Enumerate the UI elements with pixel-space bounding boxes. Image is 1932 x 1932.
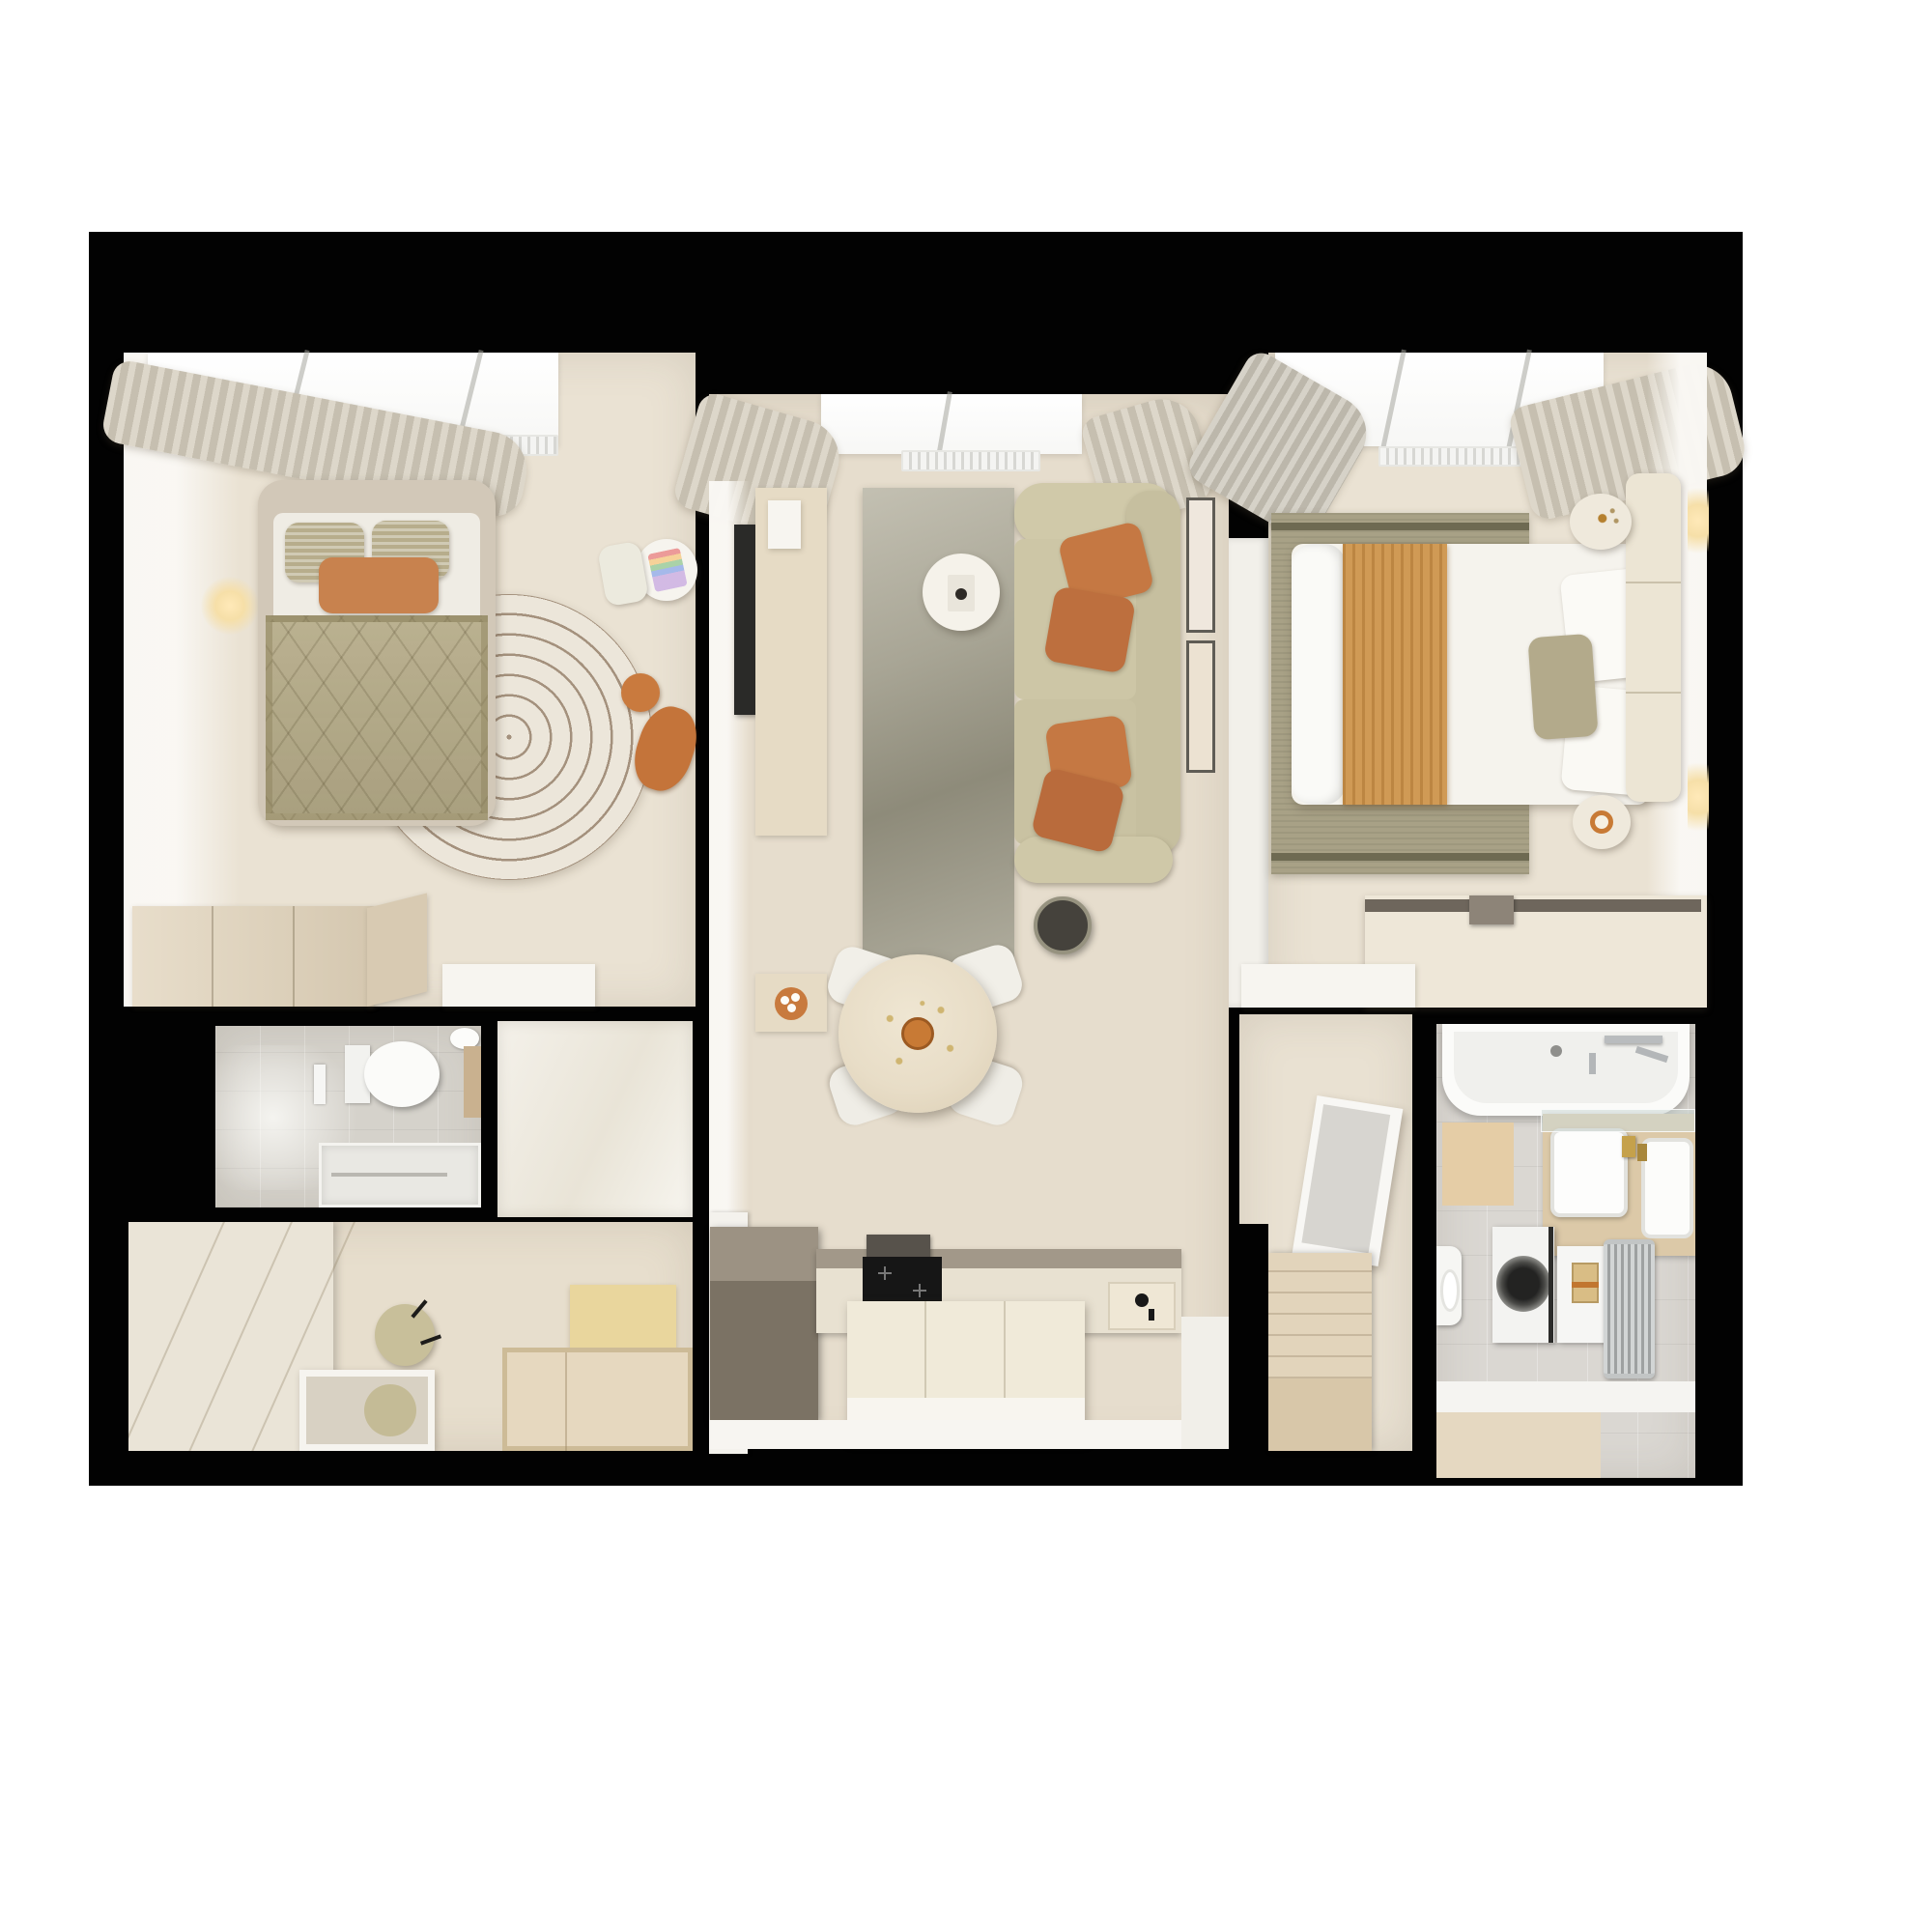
- linear-drain: [331, 1173, 447, 1177]
- washer-door: [1496, 1256, 1550, 1312]
- dining-table: [838, 954, 997, 1113]
- hallway-wall-patch: [1229, 1224, 1268, 1451]
- bedroom-left-dresser-end: [367, 894, 427, 1007]
- wall-light-strip: [1688, 476, 1709, 565]
- kitchen-island: [847, 1301, 1085, 1439]
- room-bedroom-left: [124, 353, 696, 1007]
- bedroom-right-bed: [1292, 544, 1649, 805]
- gold-tap: [1622, 1136, 1635, 1157]
- pillow-olive-accent: [1527, 634, 1598, 740]
- desk-lamp: [1469, 895, 1514, 924]
- coffee-cup: [955, 588, 967, 600]
- basin-vanity-wood: [464, 1046, 481, 1118]
- tub-drain: [1550, 1045, 1562, 1057]
- sink-left: [1550, 1128, 1628, 1217]
- wall-frame: [1186, 497, 1215, 633]
- kids-drawing: [647, 548, 688, 592]
- kitchen-tall-cabinet: [710, 1227, 818, 1420]
- kitchen-sink: [1108, 1282, 1176, 1330]
- tub-faucet: [1605, 1036, 1662, 1043]
- centerpiece-sprigs: [871, 993, 964, 1078]
- wc-flush-plate: [314, 1065, 326, 1104]
- bath-mat: [1442, 1122, 1514, 1206]
- washing-machine: [1492, 1227, 1554, 1343]
- sofa-pillow-rust: [1043, 585, 1136, 673]
- media-device: [768, 500, 801, 549]
- floor-lamp: [1034, 896, 1092, 954]
- mattress-roll: [1292, 544, 1346, 805]
- vanity-table-mirror: [299, 1370, 435, 1451]
- living-right-wall-face: [1181, 1317, 1229, 1449]
- bedroom-left-bed: [258, 480, 496, 826]
- stool-reflection: [364, 1384, 416, 1436]
- nightstand-top: [1570, 494, 1632, 550]
- wall-tv: [734, 525, 755, 715]
- bedroom-right-desk: [1365, 895, 1707, 1008]
- bathroom-entry-white: [1436, 1381, 1695, 1412]
- stool-olive: [375, 1304, 435, 1366]
- wall-frame: [1186, 640, 1215, 773]
- leaning-mirror-panel: [1293, 1095, 1404, 1266]
- side-table: [755, 974, 827, 1032]
- toilet-bowl: [364, 1041, 440, 1107]
- headboard: [1626, 473, 1681, 802]
- bedroom-left-wall-sconce: [201, 577, 259, 635]
- sofa: [1014, 483, 1182, 883]
- coffee-table: [923, 554, 1000, 631]
- wardrobe-block: [497, 1021, 693, 1217]
- room-living-kitchen: [709, 394, 1229, 1449]
- dividing-wall-white: [1229, 538, 1268, 1008]
- bar-radiator: [1604, 1239, 1655, 1378]
- toilet-bathroom: [1436, 1246, 1462, 1325]
- bathtub: [1442, 1024, 1690, 1116]
- towel: [1572, 1263, 1599, 1303]
- kitchen-floor-strip: [709, 1420, 1181, 1449]
- olive-quilted-duvet: [266, 615, 488, 820]
- storage-bench: [1268, 1253, 1372, 1451]
- bedroom-right-radiator: [1378, 446, 1523, 467]
- nightstand-bottom: [1573, 795, 1631, 849]
- wall-light-strip: [1688, 751, 1709, 843]
- bedroom-left-dresser: [132, 906, 374, 1007]
- room-study: [128, 1222, 693, 1451]
- sink-tap: [1135, 1293, 1149, 1307]
- living-window: [821, 394, 1082, 454]
- toy-figure-head: [621, 673, 660, 712]
- wood-platform: [502, 1348, 693, 1451]
- plant-sprig: [1595, 503, 1620, 528]
- corner-shelf: [1241, 964, 1415, 1008]
- render-canvas: [0, 0, 1932, 1932]
- tray-with-eggs: [775, 987, 808, 1020]
- orange-cup: [1590, 810, 1613, 834]
- room-bathroom: [1436, 1024, 1695, 1478]
- bathroom-entry-wood: [1436, 1412, 1601, 1478]
- glass-shelf: [1541, 1109, 1695, 1132]
- tub-handle: [1589, 1053, 1596, 1074]
- room-wc: [215, 1026, 481, 1207]
- caramel-throw: [1343, 544, 1447, 805]
- desk-rail: [1365, 899, 1701, 912]
- room-bedroom-right: [1268, 353, 1707, 1008]
- apartment-floor-plan: [89, 232, 1743, 1486]
- gold-tap: [1637, 1144, 1647, 1161]
- living-radiator: [901, 450, 1040, 471]
- bedroom-left-bench: [442, 964, 595, 1007]
- pillow-rust-lumbar: [319, 557, 439, 613]
- shower-tray: [319, 1143, 481, 1207]
- media-console: [755, 488, 827, 836]
- sink-right: [1641, 1138, 1693, 1238]
